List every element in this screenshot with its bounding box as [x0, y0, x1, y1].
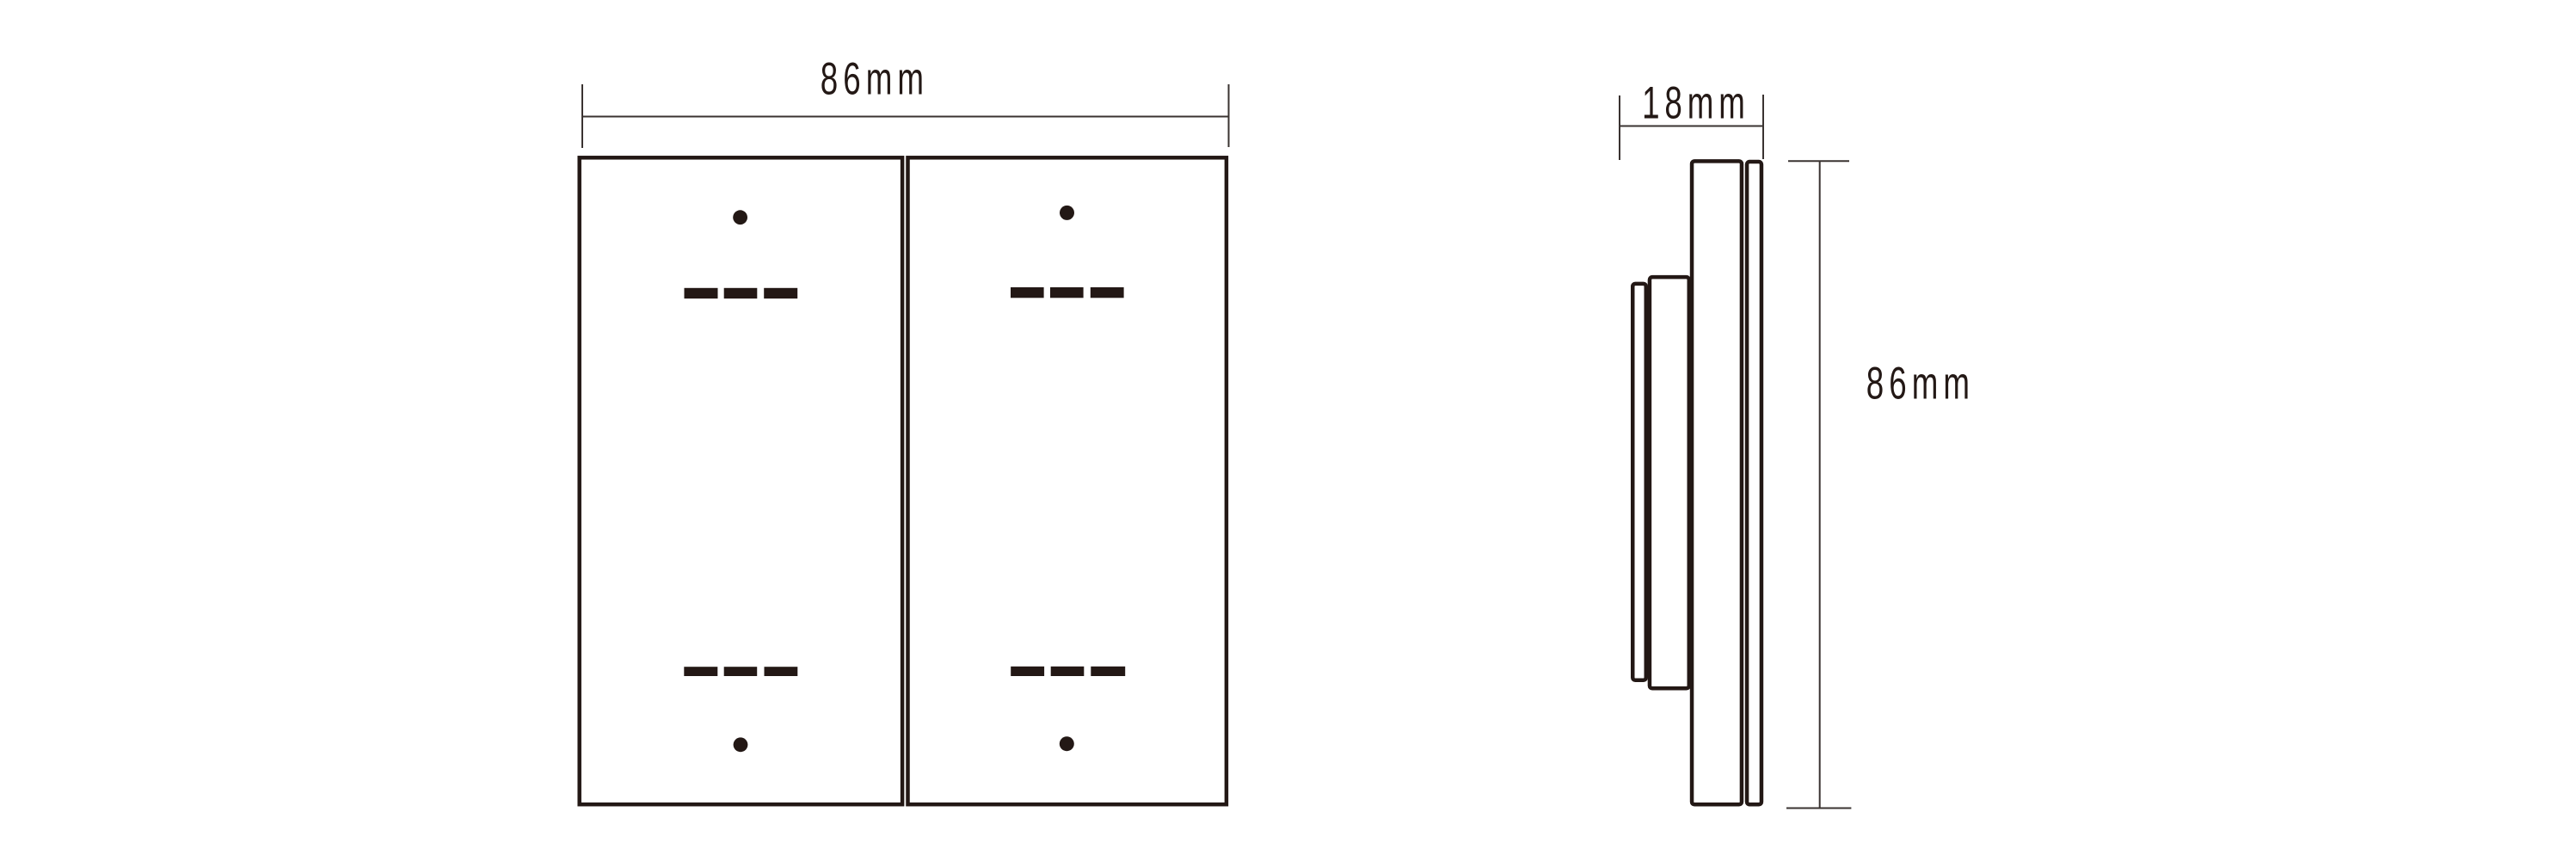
svg-text:18mm: 18mm	[1642, 77, 1750, 128]
svg-text:86mm: 86mm	[821, 53, 929, 104]
svg-text:86mm: 86mm	[1866, 358, 1975, 409]
